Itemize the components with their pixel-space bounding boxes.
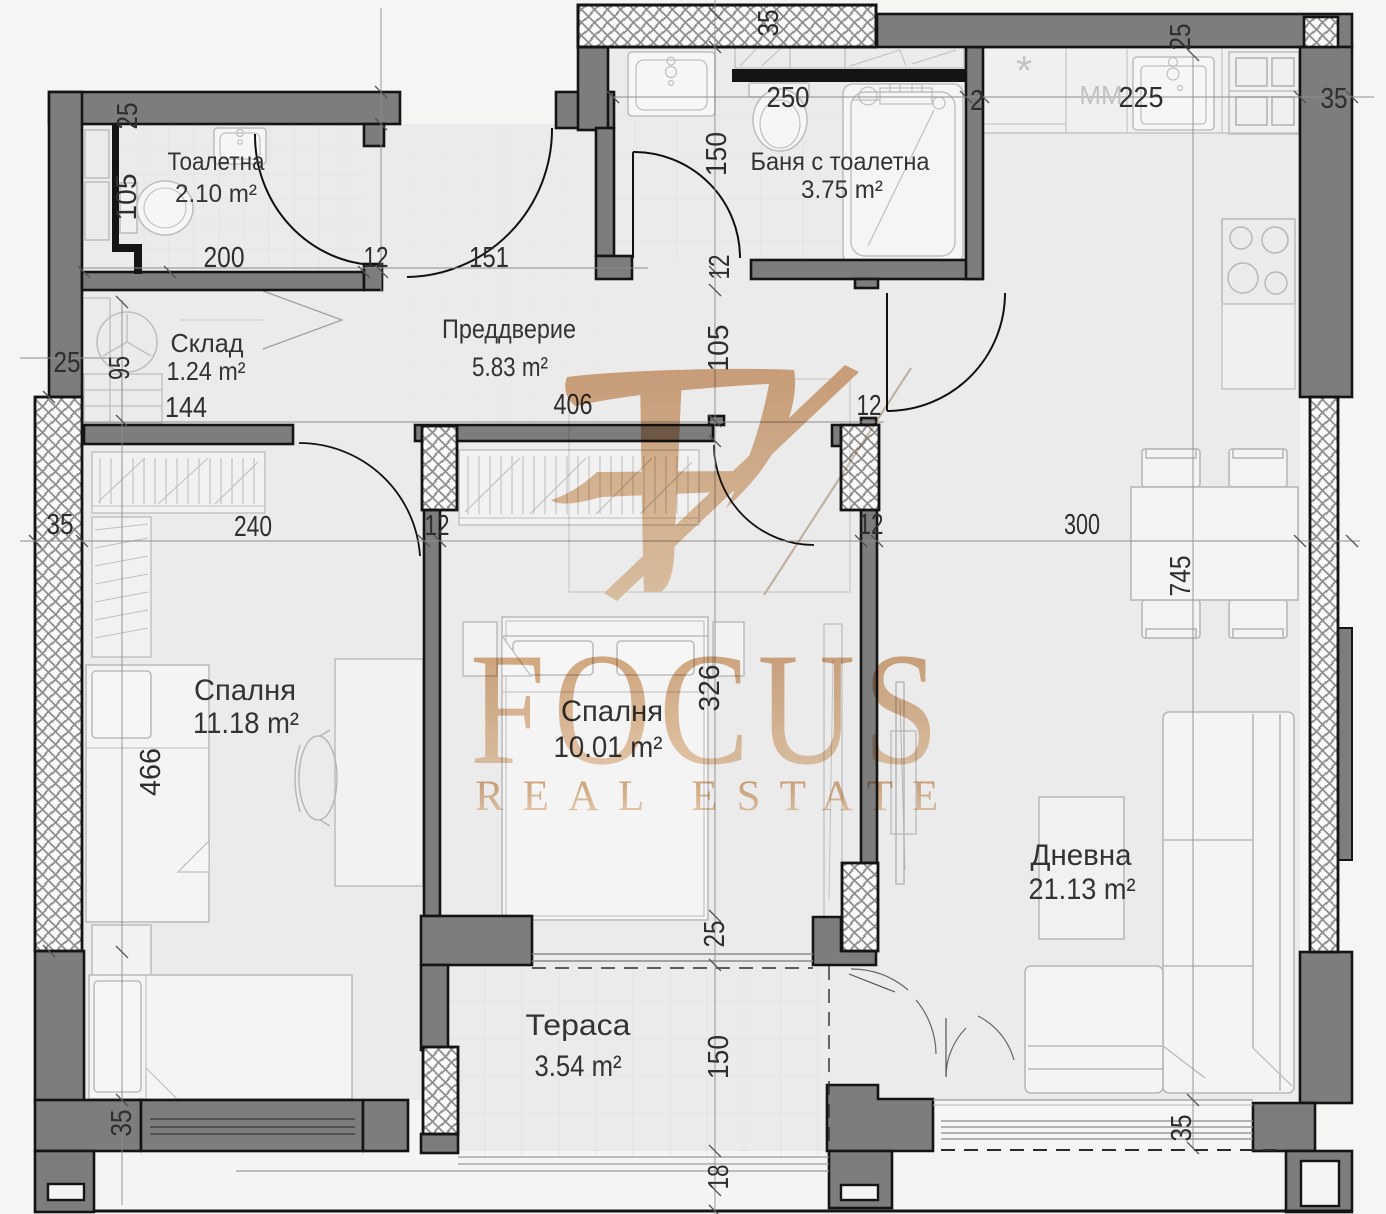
svg-text:35: 35 xyxy=(1321,83,1348,115)
svg-text:Преддверие: Преддверие xyxy=(442,314,576,344)
svg-text:240: 240 xyxy=(234,511,272,543)
svg-text:745: 745 xyxy=(1165,556,1197,597)
svg-text:5.83 m²: 5.83 m² xyxy=(472,352,548,382)
svg-text:18: 18 xyxy=(703,1165,735,1190)
svg-text:21.13 m²: 21.13 m² xyxy=(1029,873,1136,906)
svg-text:Спалня: Спалня xyxy=(194,674,296,707)
svg-text:3.54 m²: 3.54 m² xyxy=(535,1050,622,1083)
svg-text:35: 35 xyxy=(47,509,74,541)
svg-text:151: 151 xyxy=(469,242,509,274)
svg-text:150: 150 xyxy=(701,132,733,176)
svg-text:MM: MM xyxy=(1079,80,1122,110)
svg-text:25: 25 xyxy=(699,921,731,948)
svg-text:12: 12 xyxy=(364,242,389,274)
svg-text:REAL ESTATE: REAL ESTATE xyxy=(475,773,957,820)
svg-text:25: 25 xyxy=(112,103,144,130)
svg-text:Тераса: Тераса xyxy=(526,1009,631,1042)
svg-text:12: 12 xyxy=(704,255,736,280)
svg-text:Баня с тоалетна: Баня с тоалетна xyxy=(751,148,930,176)
svg-text:250: 250 xyxy=(767,82,810,114)
svg-text:144: 144 xyxy=(165,392,207,424)
svg-text:3.75 m²: 3.75 m² xyxy=(801,176,883,204)
svg-text:35: 35 xyxy=(753,10,785,37)
svg-text:Склад: Склад xyxy=(171,328,244,358)
svg-text:12: 12 xyxy=(859,509,884,541)
svg-text:150: 150 xyxy=(703,1035,735,1079)
svg-text:12: 12 xyxy=(857,390,882,422)
svg-text:105: 105 xyxy=(703,325,735,372)
svg-text:2: 2 xyxy=(970,85,984,117)
svg-text:35: 35 xyxy=(106,1110,138,1137)
svg-text:300: 300 xyxy=(1064,509,1100,541)
svg-text:225: 225 xyxy=(1119,82,1164,114)
svg-text:2.10 m²: 2.10 m² xyxy=(175,180,257,208)
svg-text:95: 95 xyxy=(104,356,136,380)
svg-text:105: 105 xyxy=(111,174,143,221)
svg-text:1.24 m²: 1.24 m² xyxy=(167,356,246,386)
svg-text:11.18 m²: 11.18 m² xyxy=(193,707,299,740)
svg-text:466: 466 xyxy=(135,748,167,796)
svg-text:Тоалетна: Тоалетна xyxy=(168,148,265,176)
svg-text:25: 25 xyxy=(54,347,81,379)
svg-text:200: 200 xyxy=(204,242,245,274)
svg-text:Дневна: Дневна xyxy=(1031,839,1132,872)
svg-text:12: 12 xyxy=(425,510,450,542)
svg-text:35: 35 xyxy=(1166,1115,1198,1142)
svg-text:*: * xyxy=(1016,47,1032,94)
svg-text:25: 25 xyxy=(1165,24,1197,51)
